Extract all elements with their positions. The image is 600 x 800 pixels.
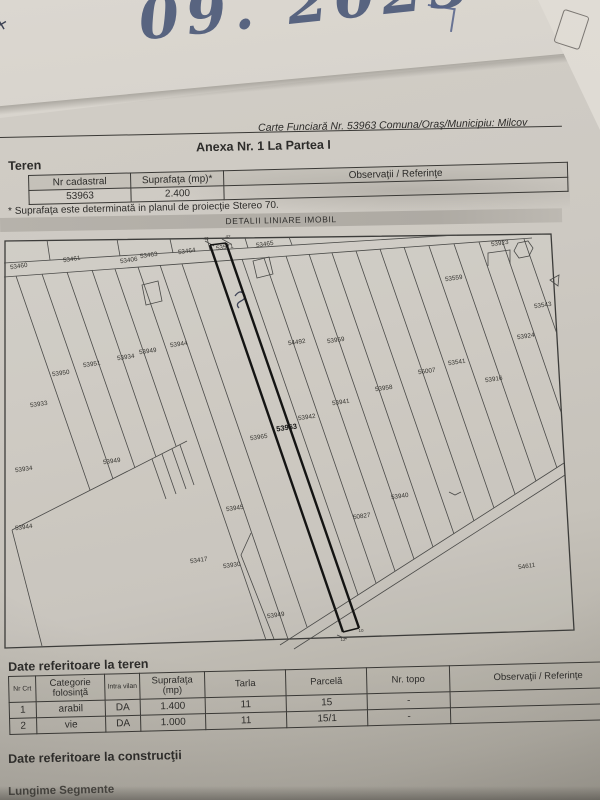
cadastral-map: 5346053461534635346453571534655340653923…: [2, 233, 577, 653]
table-cell: arabil: [36, 700, 105, 718]
teren-table: Nr cadastral Suprafaţa (mp)* Observaţii …: [28, 175, 568, 205]
vertex-label-10: 10: [358, 628, 364, 633]
table-cell: -: [367, 708, 450, 726]
col-nr-topo: Nr. topo: [366, 666, 450, 694]
cadastral-map-svg: 5346053461534635346453571534655340653923…: [2, 233, 577, 653]
table-cell: vie: [37, 716, 106, 734]
col-categorie: Categorie folosinţă: [36, 674, 106, 702]
col-tarla: Tarla: [204, 670, 286, 698]
col-intravilan: Intra vilan: [104, 673, 140, 700]
table-cell: 1.400: [140, 698, 205, 716]
table-cell: 1.000: [140, 714, 205, 732]
lungime-segmente-title: Lungime Segmente: [8, 784, 114, 798]
col-nr-crt: Nr Crt: [9, 676, 37, 703]
col-parcela: Parcelă: [285, 668, 367, 696]
table-cell: 2.400: [131, 186, 224, 202]
anexa-title: Anexa Nr. 1 La Partea I: [196, 138, 331, 155]
vertex-label-12: 12: [340, 637, 346, 642]
table-cell: 11: [205, 712, 286, 730]
table-cell: 15: [286, 694, 367, 712]
pen-corner-mark-icon: [424, 4, 455, 32]
table-cell: DA: [105, 699, 140, 716]
table-cell: 15/1: [286, 710, 367, 728]
table-cell: 1: [9, 702, 36, 719]
date-teren-table: Nr Crt Categorie folosinţă Intra vilan S…: [8, 676, 600, 735]
document-photo: 09. 2023 × Carte Funciară Nr. 53963 Comu…: [0, 0, 600, 800]
table-cell: 53963: [29, 188, 131, 204]
map-border: [5, 234, 574, 648]
vertex-label-43: 43: [203, 236, 209, 241]
pen-x-mark-icon: ×: [0, 13, 9, 38]
col-observatii-referinte: Observaţii / Referinţe: [449, 661, 600, 691]
vertex-label-42: 42: [225, 234, 231, 239]
table-cell: [450, 703, 600, 723]
table-cell: 2: [10, 718, 37, 735]
table-cell: DA: [106, 715, 141, 732]
teren-section-title: Teren: [8, 158, 41, 173]
col-suprafata-mp: Suprafaţa (mp): [139, 672, 205, 700]
